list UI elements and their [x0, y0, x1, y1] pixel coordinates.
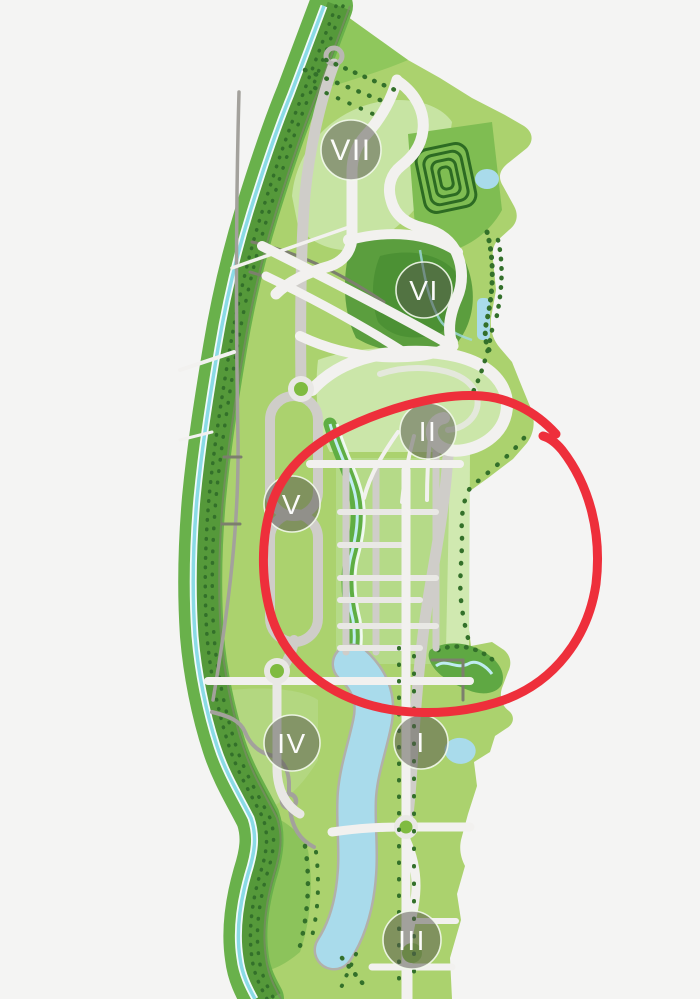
pond-north	[475, 169, 499, 189]
masterplan-map: VII VI II V IV I III	[0, 0, 700, 999]
svg-text:IV: IV	[277, 728, 306, 759]
zone-badge-ii[interactable]: II	[400, 403, 456, 459]
zone-badge-vi[interactable]: VI	[396, 262, 452, 318]
zone-badge-i[interactable]: I	[394, 715, 448, 769]
zone-badge-iv[interactable]: IV	[264, 715, 320, 771]
svg-text:VI: VI	[409, 275, 438, 306]
svg-text:II: II	[419, 416, 438, 447]
svg-text:V: V	[282, 489, 302, 520]
svg-text:I: I	[416, 727, 425, 758]
road-end-dot	[343, 234, 355, 246]
zone-badge-vii[interactable]: VII	[321, 120, 381, 180]
zone-badge-iii[interactable]: III	[383, 911, 441, 969]
svg-text:III: III	[398, 925, 426, 956]
map-canvas: VII VI II V IV I III	[0, 0, 700, 999]
svg-text:VII: VII	[330, 134, 371, 167]
